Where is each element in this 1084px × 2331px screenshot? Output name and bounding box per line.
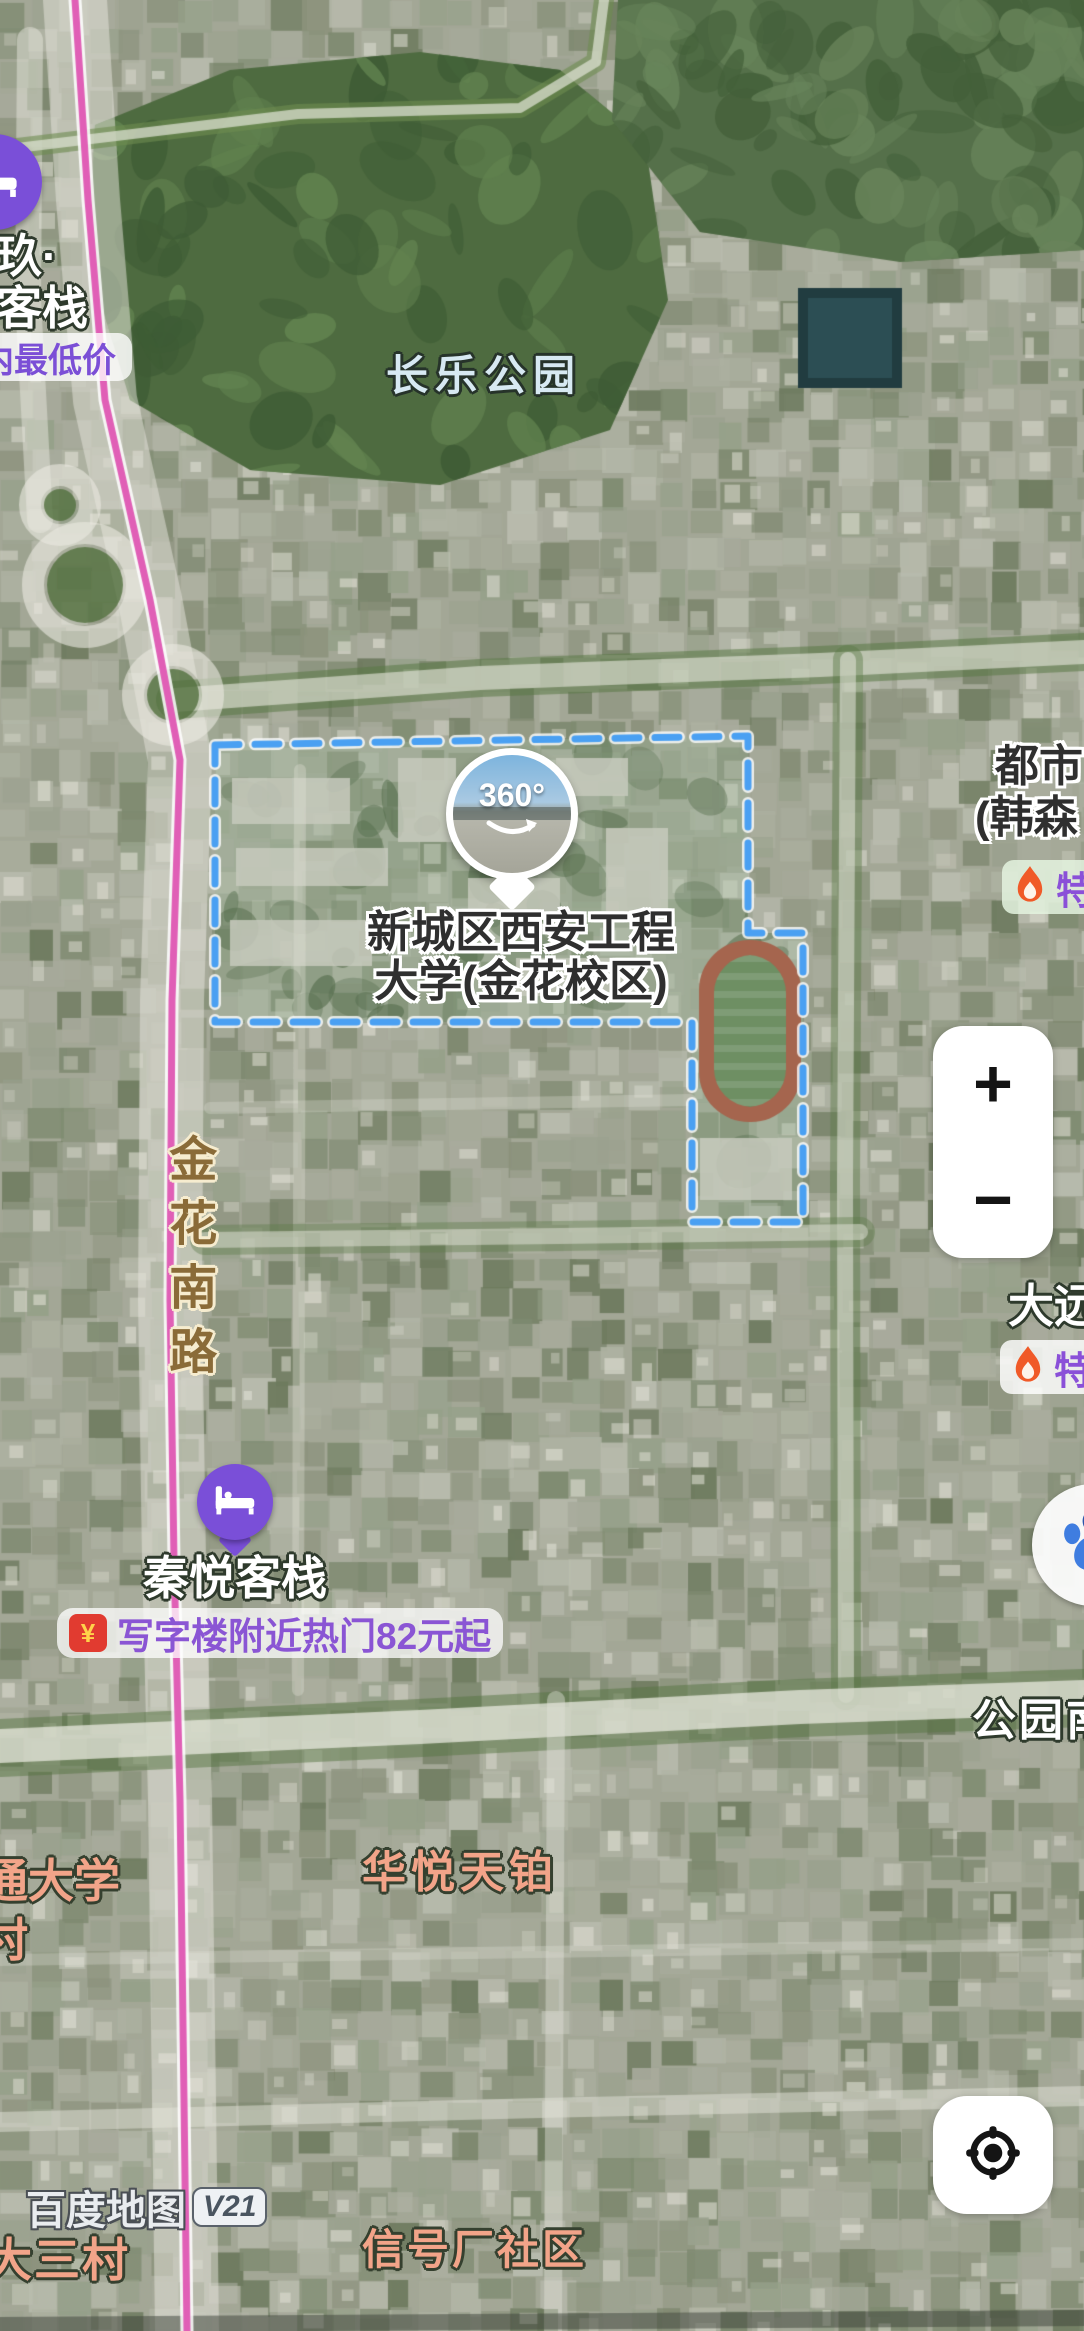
dushi-line2: (韩森 <box>975 793 1078 842</box>
hotel-qinyue-price-badge[interactable]: ¥ 写字楼附近热门82元起 <box>57 1608 503 1658</box>
flame-icon <box>1012 865 1048 910</box>
hotel-anjiu-label-line1[interactable]: 玖· <box>0 230 57 283</box>
bed-icon <box>213 1482 257 1523</box>
hotel-qinyue-label[interactable]: 秦悦客栈 <box>85 1552 385 1605</box>
promo-te-text: 特 <box>1056 860 1084 915</box>
qinyue-badge-text: 写字楼附近热门82元起 <box>117 1606 491 1660</box>
hotel-anjiu-badge-text: 天内最低价 <box>0 333 116 382</box>
panorama-360-label: 360° <box>453 777 571 814</box>
poi-label-jiaotong-univ[interactable]: 通大学 村 <box>0 1852 120 1970</box>
baidu-maps-logo: 百度地图 <box>26 2178 186 2236</box>
promo-badge-dushi[interactable]: 特 <box>1002 860 1084 914</box>
hotel-anjiu-label-line2[interactable]: 客栈 <box>0 282 88 335</box>
hotel-marker-qinyue[interactable] <box>197 1464 273 1540</box>
poi-label-campus[interactable]: 新城区西安工程 大学(金花校区) <box>221 908 821 1007</box>
poi-label-dasancun[interactable]: 大三村 <box>0 2234 130 2287</box>
map-attribution: 百度地图 V21 <box>26 2178 267 2236</box>
poi-label-changle-park[interactable]: 长乐公园 <box>386 352 582 400</box>
red-envelope-icon: ¥ <box>69 1614 107 1652</box>
poi-label-dushi[interactable]: 都市 (韩森 <box>975 742 1083 843</box>
rotate-arrow-icon <box>484 817 540 844</box>
poi-label-dayuan[interactable]: 大远 <box>1008 1280 1084 1333</box>
target-icon <box>960 2120 1026 2191</box>
campus-label-line2: 大学(金花校区) <box>374 957 667 1006</box>
poi-label-xinhaochang[interactable]: 信号厂社区 <box>362 2226 587 2274</box>
flame-icon <box>1010 1345 1046 1390</box>
panorama-marker[interactable]: 360° <box>446 748 578 880</box>
hotel-anjiu-price-badge[interactable]: 天内最低价 <box>0 333 132 381</box>
baidu-paw-icon <box>1056 1506 1084 1585</box>
zoom-control: + − <box>933 1026 1053 1258</box>
zoom-in-button[interactable]: + <box>933 1026 1053 1142</box>
campus-label-line1: 新城区西安工程 <box>367 908 675 957</box>
panorama-thumbnail: 360° <box>453 755 571 873</box>
road-label-jinhua-south: 金花南路 <box>160 1134 215 1390</box>
tong-line2: 村 <box>0 1914 28 1966</box>
bed-icon <box>0 159 20 206</box>
dushi-line1: 都市 <box>975 742 1083 793</box>
zoom-out-button[interactable]: − <box>933 1142 1053 1258</box>
tong-line1: 通大学 <box>0 1855 120 1907</box>
poi-label-huayue[interactable]: 华悦天铂 <box>362 1848 558 1899</box>
promo-te-text: 特 <box>1054 1340 1084 1395</box>
map-version-badge: V21 <box>192 2187 267 2227</box>
promo-badge-dayuan[interactable]: 特 <box>1000 1340 1084 1394</box>
locate-me-button[interactable] <box>933 2096 1053 2214</box>
road-label-gongyuan-south: 公园南 <box>972 1696 1084 1747</box>
map-viewport: 玖· 客栈 天内最低价 长乐公园 360° 新城区西安工程 大学(金花校区) 都… <box>0 0 1084 2331</box>
